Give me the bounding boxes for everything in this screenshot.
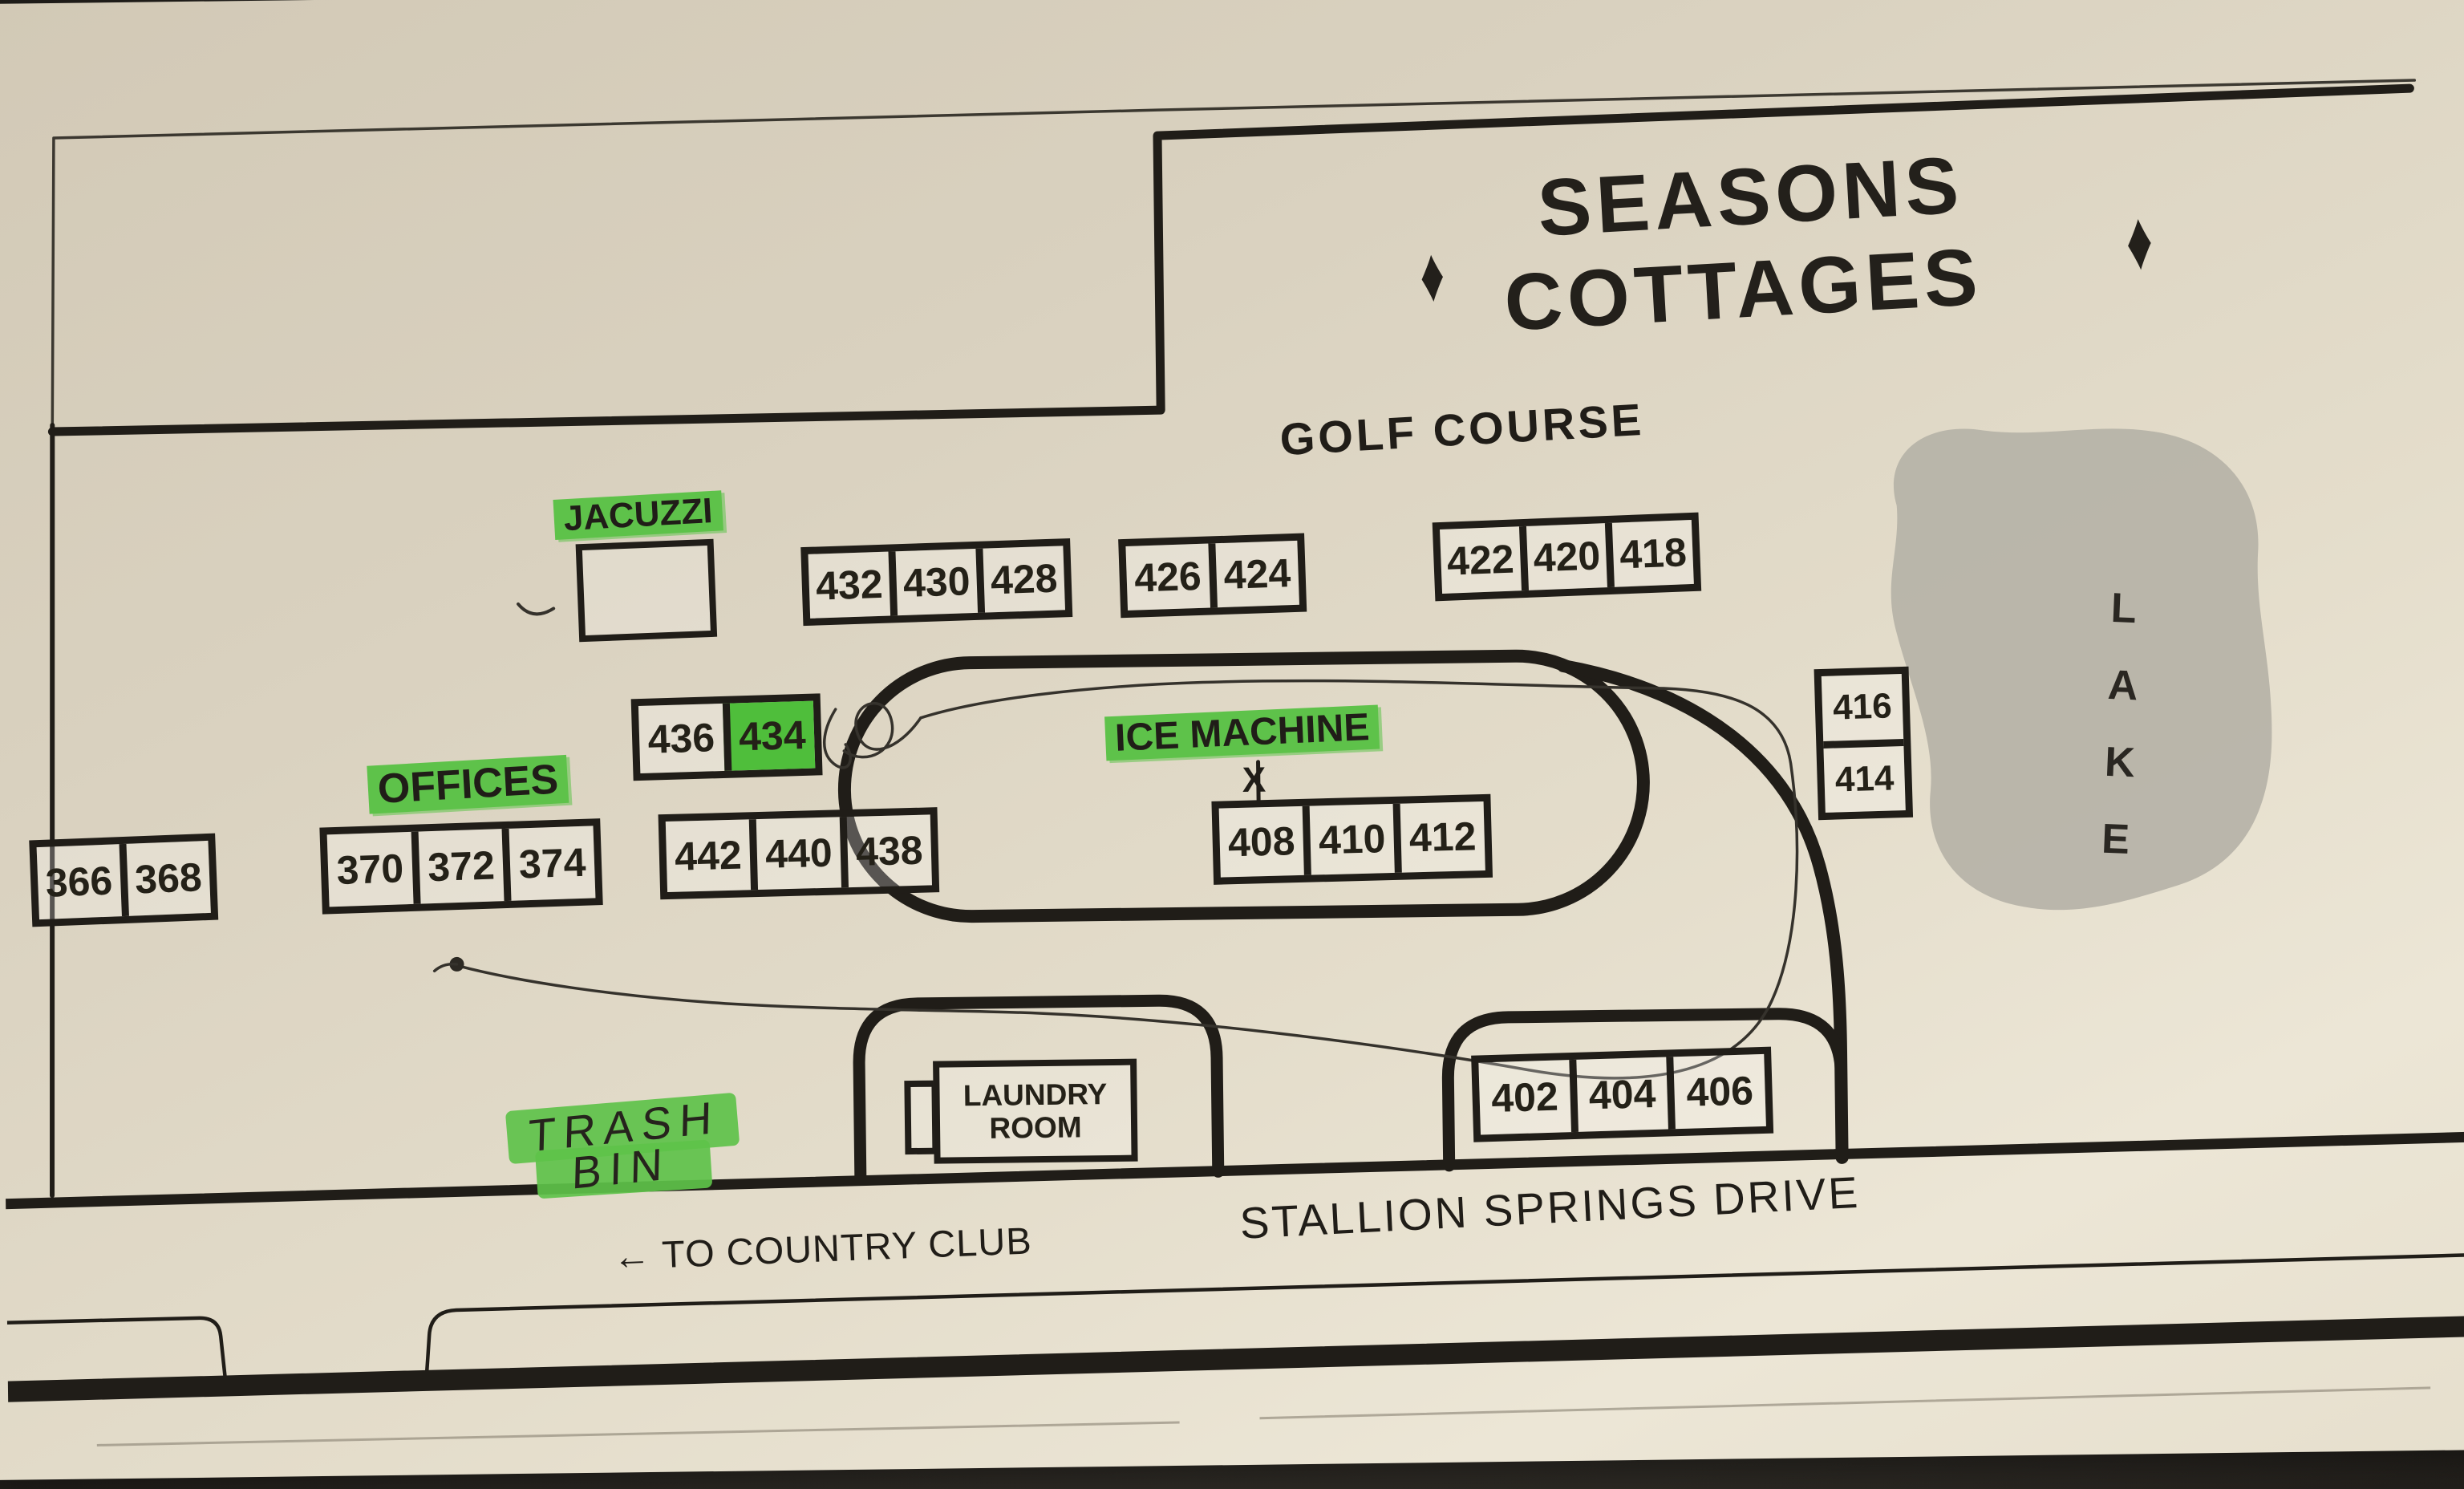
trash-bin-label-line2: BIN: [571, 1137, 671, 1199]
unit-group-370-372-374: 370 372 374: [319, 818, 602, 915]
unit-428: 428: [975, 546, 1065, 613]
unit-group-426-424: 426 424: [1118, 534, 1307, 619]
street-south-edge-west: [0, 1317, 225, 1381]
ice-machine-x-marker: X: [1242, 761, 1266, 801]
street-north-edge: [0, 1137, 2464, 1204]
unit-group-366-368: 366 368: [29, 834, 218, 927]
unit-408: 408: [1219, 806, 1304, 878]
unit-372: 372: [411, 829, 505, 904]
title-diamond-left-icon: ♦: [1418, 235, 1447, 314]
lake-letter: A: [2107, 661, 2139, 710]
unit-426: 426: [1125, 544, 1210, 611]
jacuzzi-box: [576, 539, 718, 643]
unit-group-402-404-406: 402 404 406: [1471, 1047, 1773, 1142]
unit-group-416-414: 416 414: [1814, 667, 1914, 820]
unit-430: 430: [888, 549, 978, 616]
title-block-border: [49, 88, 2414, 432]
jacuzzi-tick-mark: [518, 603, 553, 614]
unit-group-422-420-418: 422 420 418: [1433, 513, 1702, 602]
unit-424: 424: [1208, 541, 1299, 608]
bottom-road-bar: [0, 1326, 2464, 1392]
title-diamond-right-icon: ♦: [2124, 197, 2155, 284]
unit-366: 366: [37, 844, 122, 919]
resort-map: SEASONS COTTAGES ♦ ♦ GOLF COURSE JACUZZI…: [0, 0, 2464, 1489]
unit-406: 406: [1667, 1054, 1766, 1130]
unit-group-432-430-428: 432 430 428: [800, 538, 1072, 626]
unit-422: 422: [1440, 526, 1522, 594]
unit-432: 432: [808, 552, 891, 619]
lake-shape: [1889, 425, 2274, 912]
laundry-line1: LAUNDRY: [963, 1077, 1108, 1113]
unit-368: 368: [119, 841, 211, 916]
unit-414: 414: [1823, 738, 1906, 812]
unit-440: 440: [749, 817, 841, 890]
unit-group-436-434: 436 434: [631, 693, 823, 781]
unit-group-442-440-438: 442 440 438: [659, 807, 940, 899]
unit-420: 420: [1519, 523, 1608, 590]
pencil-smudge-line: [96, 1388, 2430, 1446]
laundry-room-box: LAUNDRY ROOM: [933, 1059, 1138, 1164]
lake-letter: K: [2104, 738, 2136, 787]
paper-sheet: SEASONS COTTAGES ♦ ♦ GOLF COURSE JACUZZI…: [0, 0, 2464, 1480]
unit-370: 370: [327, 832, 414, 907]
lake-letter: L: [2110, 584, 2142, 633]
unit-442: 442: [666, 819, 751, 892]
laundry-line2: ROOM: [989, 1110, 1082, 1145]
map-left-border: [43, 425, 62, 1195]
laundry-room-label: LAUNDRY ROOM: [939, 1065, 1131, 1158]
unit-434-highlighted: 434: [722, 701, 815, 771]
unit-group-408-410-412: 408 410 412: [1211, 794, 1493, 885]
unit-416: 416: [1822, 674, 1903, 740]
unit-412: 412: [1393, 801, 1485, 873]
unit-410: 410: [1303, 804, 1395, 875]
lake-letter: E: [2101, 815, 2133, 864]
unit-404: 404: [1569, 1057, 1668, 1133]
unit-436: 436: [638, 704, 724, 773]
unit-374: 374: [502, 826, 596, 901]
unit-418: 418: [1605, 520, 1694, 587]
unit-402: 402: [1478, 1060, 1570, 1134]
unit-438: 438: [840, 814, 932, 887]
